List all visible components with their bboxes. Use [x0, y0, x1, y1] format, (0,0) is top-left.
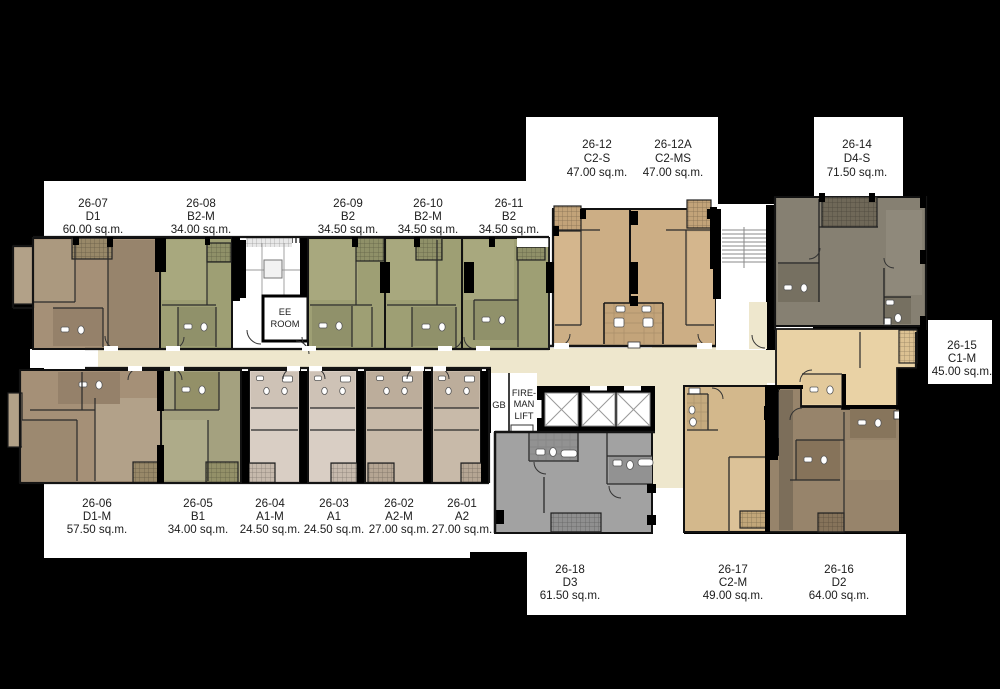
svg-text:26-14: 26-14	[842, 138, 872, 151]
svg-text:26-04: 26-04	[255, 497, 285, 510]
svg-text:26-11: 26-11	[495, 197, 524, 210]
svg-text:34.00 sq.m.: 34.00 sq.m.	[171, 223, 232, 236]
svg-text:26-12: 26-12	[582, 138, 612, 151]
svg-text:D4-S: D4-S	[844, 152, 871, 165]
svg-text:B2: B2	[341, 210, 355, 223]
svg-text:24.50 sq.m.: 24.50 sq.m.	[240, 523, 301, 536]
svg-text:71.50 sq.m.: 71.50 sq.m.	[827, 166, 888, 179]
svg-text:A2: A2	[455, 510, 469, 523]
svg-text:ROOM: ROOM	[271, 319, 300, 329]
svg-text:B2-M: B2-M	[414, 210, 442, 223]
svg-text:27.00 sq.m.: 27.00 sq.m.	[369, 523, 430, 536]
svg-text:26-15: 26-15	[947, 339, 977, 352]
svg-text:26-10: 26-10	[413, 197, 443, 210]
svg-text:57.50 sq.m.: 57.50 sq.m.	[67, 523, 128, 536]
svg-text:24.50 sq.m.: 24.50 sq.m.	[304, 523, 365, 536]
svg-text:D1: D1	[86, 210, 101, 223]
svg-text:B2-M: B2-M	[187, 210, 215, 223]
svg-text:D1-M: D1-M	[83, 510, 111, 523]
svg-text:EE: EE	[279, 307, 291, 317]
svg-text:26-05: 26-05	[183, 497, 213, 510]
svg-text:26-06: 26-06	[82, 497, 112, 510]
svg-text:47.00 sq.m.: 47.00 sq.m.	[567, 166, 628, 179]
svg-text:A2-M: A2-M	[385, 510, 413, 523]
svg-text:26-18: 26-18	[555, 563, 585, 576]
svg-text:LIFT: LIFT	[514, 411, 533, 421]
svg-text:A1-M: A1-M	[256, 510, 284, 523]
svg-text:C2-MS: C2-MS	[655, 152, 691, 165]
svg-text:34.00 sq.m.: 34.00 sq.m.	[168, 523, 229, 536]
svg-text:49.00 sq.m.: 49.00 sq.m.	[703, 589, 764, 602]
svg-text:MAN: MAN	[514, 399, 535, 409]
svg-text:26-07: 26-07	[78, 197, 108, 210]
svg-text:FIRE-: FIRE-	[512, 388, 536, 398]
svg-text:GB: GB	[492, 400, 505, 410]
svg-text:A1: A1	[327, 510, 341, 523]
svg-text:60.00 sq.m.: 60.00 sq.m.	[63, 223, 124, 236]
svg-text:26-16: 26-16	[824, 563, 854, 576]
svg-text:C2-M: C2-M	[719, 576, 747, 589]
svg-text:26-02: 26-02	[384, 497, 414, 510]
svg-text:26-08: 26-08	[186, 197, 216, 210]
svg-text:26-17: 26-17	[718, 563, 748, 576]
svg-text:45.00 sq.m.: 45.00 sq.m.	[932, 365, 993, 378]
svg-text:C1-M: C1-M	[948, 352, 976, 365]
svg-text:47.00 sq.m.: 47.00 sq.m.	[643, 166, 704, 179]
svg-text:61.50 sq.m.: 61.50 sq.m.	[540, 589, 601, 602]
svg-text:B2: B2	[502, 210, 516, 223]
svg-text:64.00 sq.m.: 64.00 sq.m.	[809, 589, 870, 602]
svg-text:26-01: 26-01	[447, 497, 477, 510]
svg-text:26-09: 26-09	[333, 197, 363, 210]
svg-text:26-03: 26-03	[319, 497, 349, 510]
svg-text:B1: B1	[191, 510, 205, 523]
svg-text:34.50 sq.m.: 34.50 sq.m.	[398, 223, 459, 236]
svg-text:27.00 sq.m.: 27.00 sq.m.	[432, 523, 493, 536]
svg-text:34.50 sq.m.: 34.50 sq.m.	[479, 223, 540, 236]
svg-text:26-12A: 26-12A	[654, 138, 692, 151]
svg-text:D2: D2	[832, 576, 847, 589]
svg-text:34.50 sq.m.: 34.50 sq.m.	[318, 223, 379, 236]
svg-text:C2-S: C2-S	[584, 152, 611, 165]
svg-text:D3: D3	[563, 576, 578, 589]
